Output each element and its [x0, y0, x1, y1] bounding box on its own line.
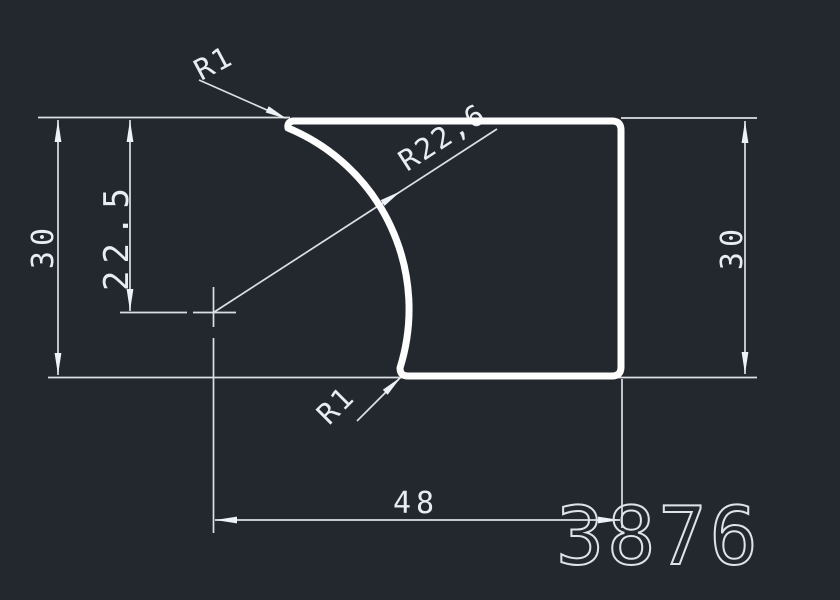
cad-drawing-canvas: 30 22.5 30 48 R1 R22,6 R1	[0, 0, 840, 600]
arrowhead-up-icon	[742, 121, 749, 143]
arrowhead-icon	[381, 191, 401, 206]
arrowhead-down-icon	[55, 353, 62, 375]
centerlines	[120, 287, 236, 533]
dim-value-width: 48	[393, 486, 439, 521]
dim-height-right: 30	[715, 121, 750, 374]
arrowhead-icon	[383, 377, 401, 395]
leader-arc-radius: R22,6	[214, 96, 498, 312]
dim-value-height-left: 30	[26, 223, 61, 269]
leader-value-fillet-top: R1	[188, 39, 238, 87]
dim-offset-center: 22.5	[97, 120, 137, 311]
arrowhead-up-icon	[127, 120, 134, 142]
leader-value-arc-radius: R22,6	[392, 96, 492, 178]
leader-line	[214, 129, 498, 313]
leader-value-fillet-bottom: R1	[310, 379, 362, 431]
leader-fillet-top: R1	[188, 39, 287, 119]
arrowhead-down-icon	[127, 289, 134, 311]
extension-lines	[38, 118, 757, 529]
profile-outline	[288, 121, 621, 376]
cad-drawing-viewport: 30 22.5 30 48 R1 R22,6 R1	[0, 0, 840, 600]
leader-fillet-bottom: R1	[310, 377, 401, 431]
dim-height-left: 30	[26, 120, 61, 375]
dim-value-height-right: 30	[715, 224, 750, 270]
arrowhead-down-icon	[742, 352, 749, 374]
dim-value-offset-center: 22.5	[97, 181, 137, 291]
arrowhead-up-icon	[55, 120, 62, 142]
arrowhead-left-icon	[215, 517, 237, 524]
part-number: 3876	[556, 490, 761, 583]
